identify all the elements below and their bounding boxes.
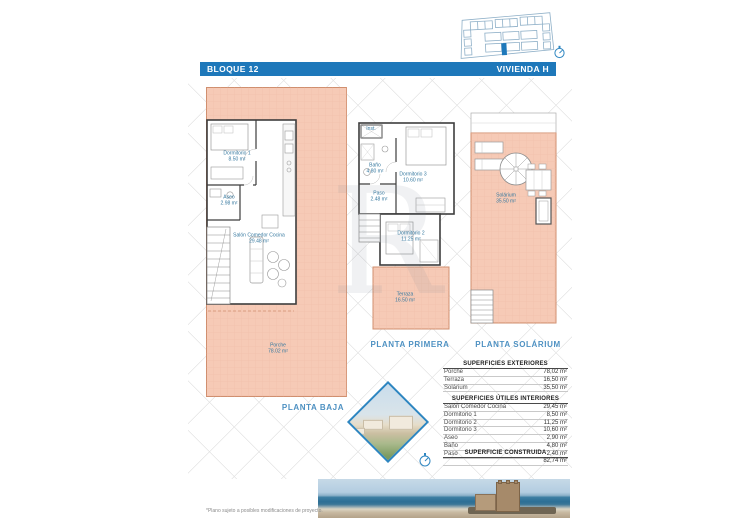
row-label: Solárium <box>444 385 468 392</box>
row-value: 35,50 m² <box>543 385 567 392</box>
beach-photo <box>318 479 570 518</box>
battlement-shape <box>506 480 510 484</box>
table-row: Salón Comedor Cocina 29,45 m² <box>443 404 568 412</box>
battlement-shape <box>514 480 518 484</box>
room-label-porche: Porche 78.02 m² <box>268 343 288 354</box>
table-title: SUPERFICIES ÚTILES INTERIORES <box>443 396 568 404</box>
room-label-solarium: Solárium 35.50 m² <box>496 193 516 204</box>
row-label: Baño <box>444 443 458 450</box>
table-row: Porche 78,02 m² <box>443 369 568 377</box>
header-bar: BLOQUE 12 VIVIENDA H <box>200 62 556 76</box>
row-label: Dormitorio 3 <box>444 427 477 434</box>
table-title: SUPERFICIES EXTERIORES <box>443 361 568 369</box>
table-row: Dormitorio 1 8,50 m² <box>443 412 568 420</box>
table-row: Terraza 16,50 m² <box>443 377 568 385</box>
row-value: 10,60 m² <box>543 427 567 434</box>
table-title: SUPERFICIE CONSTRUIDA <box>443 450 568 458</box>
row-value: 29,45 m² <box>543 404 567 411</box>
plan-solarium-drawing <box>470 112 558 330</box>
row-value: 11,25 m² <box>544 420 567 427</box>
table-superficies-exteriores: SUPERFICIES EXTERIORES Porche 78,02 m² T… <box>443 361 568 392</box>
battlement-shape <box>498 480 502 484</box>
building-shape <box>363 420 383 430</box>
row-value: 4,80 m² <box>547 443 567 450</box>
table-row: Aseo 2,90 m² <box>443 435 568 443</box>
table-row: Dormitorio 2 11,25 m² <box>443 420 568 428</box>
title-planta-baja: PLANTA BAJA <box>282 403 344 412</box>
disclaimer-footnote: *Plano sujeto a posibles modificaciones … <box>206 508 323 514</box>
unit-label: VIVIENDA H <box>497 64 549 74</box>
table-row: Solárium 35,50 m² <box>443 385 568 393</box>
compass-icon <box>418 452 432 467</box>
site-plan-diagram <box>455 12 559 60</box>
room-label-inst: Inst. <box>366 127 375 133</box>
room-label-dormitorio3: Dormitorio 3 10.60 m² <box>399 172 426 183</box>
row-value: 8,50 m² <box>547 412 567 419</box>
row-label: Dormitorio 2 <box>444 420 477 427</box>
title-planta-primera: PLANTA PRIMERA <box>370 340 449 349</box>
room-label-dormitorio2: Dormitorio 2 11.25 m² <box>397 231 424 242</box>
room-label-dormitorio1: Dormitorio 1 8.50 m² <box>223 151 250 162</box>
row-value: 16,50 m² <box>543 377 567 384</box>
room-label-paso: Paso 2.48 m² <box>371 191 388 202</box>
highlighted-unit <box>501 43 507 55</box>
row-value: 78,02 m² <box>543 369 567 376</box>
building-shape <box>389 416 413 430</box>
tower-annex-shape <box>475 494 496 511</box>
row-label: Porche <box>444 369 463 376</box>
plan-sheet: BLOQUE 12 VIVIENDA H <box>0 0 756 528</box>
compass-icon <box>553 45 566 59</box>
row-label: Aseo <box>444 435 458 442</box>
row-value: 82,74 m² <box>543 458 567 465</box>
table-row: 82,74 m² <box>443 458 568 466</box>
row-label: Salón Comedor Cocina <box>444 404 506 411</box>
title-planta-solarium: PLANTA SOLÁRIUM <box>475 340 560 349</box>
table-superficie-construida: SUPERFICIE CONSTRUIDA 82,74 m² <box>443 450 568 466</box>
block-label: BLOQUE 12 <box>207 64 259 74</box>
row-label: Terraza <box>444 377 464 384</box>
table-row: Dormitorio 3 10,60 m² <box>443 427 568 435</box>
room-label-terraza: Terraza 16.50 m² <box>395 292 415 303</box>
room-label-aseo: Aseo 2.98 m² <box>221 195 238 206</box>
row-value: 2,90 m² <box>547 435 567 442</box>
watchtower-shape <box>496 482 520 512</box>
room-label-salon: Salón Comedor Cocina 29.48 m² <box>233 233 285 244</box>
row-label: Dormitorio 1 <box>444 412 477 419</box>
room-label-bano: Baño 4.80 m² <box>367 163 384 174</box>
